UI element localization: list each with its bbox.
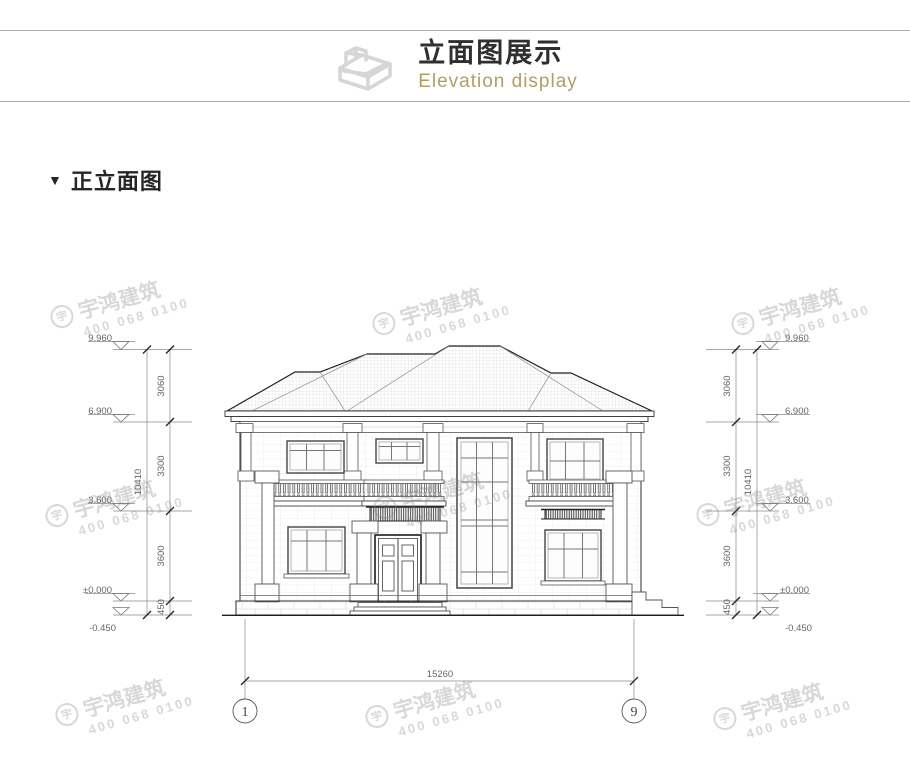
level-label-left-6900: 6.900 bbox=[88, 406, 112, 417]
entry-canopy bbox=[366, 507, 444, 521]
tall-stair-window bbox=[457, 438, 512, 588]
window bbox=[541, 530, 605, 585]
side-steps bbox=[632, 592, 678, 615]
level-label-right-3600: 3.600 bbox=[785, 495, 809, 506]
dim-right-total-10410: 10410 bbox=[743, 469, 754, 495]
dim-right-3300: 3300 bbox=[722, 455, 733, 476]
level-label-left-neg0450: -0.450 bbox=[89, 623, 116, 634]
hip-roof bbox=[227, 346, 652, 411]
front-elevation-drawing: 9.960 6.900 3.600 ±0.000 -0.450 3060 330… bbox=[0, 0, 910, 768]
balustrade bbox=[269, 480, 367, 501]
level-label-left-3600: 3.600 bbox=[88, 495, 112, 506]
dim-right-3060: 3060 bbox=[722, 375, 733, 396]
entry-steps bbox=[350, 603, 450, 616]
dim-left-total-10410: 10410 bbox=[133, 469, 144, 495]
level-label-right-neg0450: -0.450 bbox=[785, 623, 812, 634]
grid-axis-label-1: 1 bbox=[242, 705, 249, 720]
dimension-left: 9.960 6.900 3.600 ±0.000 -0.450 3060 330… bbox=[83, 333, 192, 634]
balcony-balustrades bbox=[266, 480, 618, 506]
level-label-right-0000: ±0.000 bbox=[780, 585, 809, 596]
entry-door bbox=[375, 535, 421, 602]
dim-left-3300: 3300 bbox=[156, 455, 167, 476]
level-label-right-9960: 9.960 bbox=[785, 333, 809, 344]
window bbox=[376, 439, 423, 463]
grid-axis-label-9: 9 bbox=[631, 705, 638, 720]
dim-left-3060: 3060 bbox=[156, 375, 167, 396]
level-label-left-0000: ±0.000 bbox=[83, 585, 112, 596]
window-canopy bbox=[541, 510, 605, 520]
dim-bottom-total-15260: 15260 bbox=[427, 669, 453, 680]
level-label-right-6900: 6.900 bbox=[785, 406, 809, 417]
cornice-band bbox=[236, 422, 644, 433]
dim-right-450: 450 bbox=[722, 599, 733, 615]
dim-left-450: 450 bbox=[156, 599, 167, 615]
balcony-slabs bbox=[266, 501, 618, 506]
dimension-right: 9.960 6.900 3.600 ±0.000 -0.450 3060 330… bbox=[706, 333, 812, 634]
balustrade bbox=[529, 480, 615, 501]
eave-fascia bbox=[225, 411, 654, 422]
window bbox=[284, 527, 349, 578]
dim-right-3600: 3600 bbox=[722, 545, 733, 566]
dim-left-3600: 3600 bbox=[156, 545, 167, 566]
window bbox=[547, 439, 603, 482]
window bbox=[287, 441, 344, 473]
balustrade bbox=[364, 480, 444, 501]
dimension-bottom: 15260 1 9 bbox=[233, 619, 646, 723]
house bbox=[222, 346, 684, 615]
level-label-left-9960: 9.960 bbox=[88, 333, 112, 344]
